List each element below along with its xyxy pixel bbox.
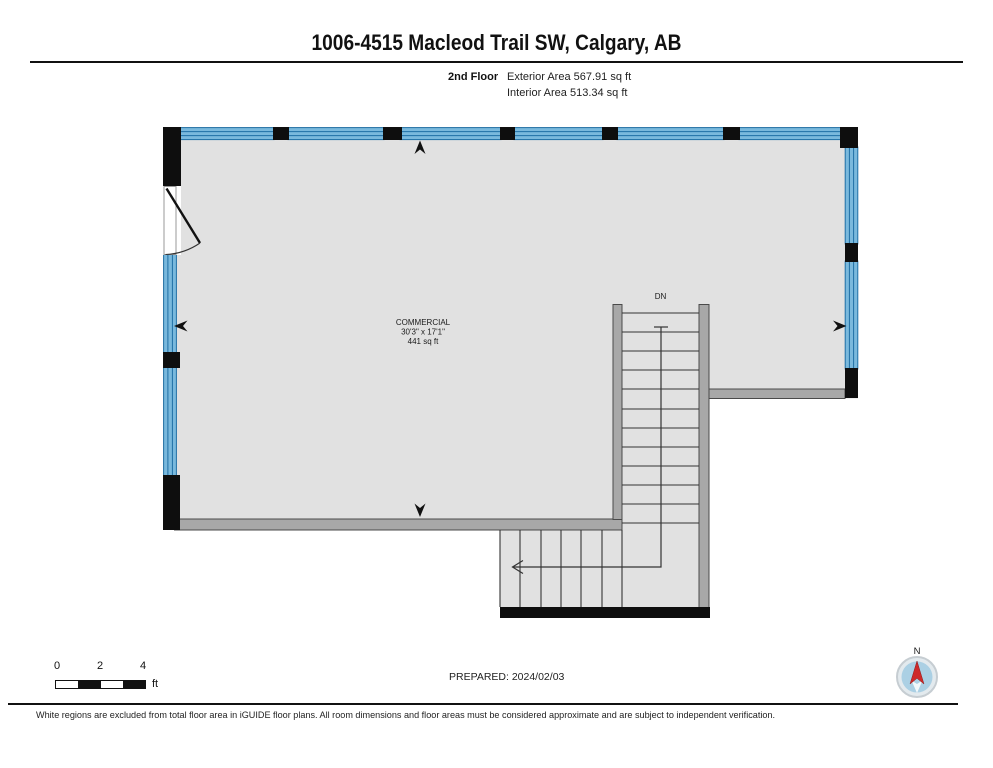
scale-bar-segments	[55, 680, 146, 689]
scale-segment	[78, 681, 100, 688]
window-right-1	[845, 147, 858, 244]
door-jamb	[164, 187, 176, 255]
footer-divider	[8, 703, 958, 705]
scale-label-0: 0	[54, 660, 60, 672]
room-bottom-wall	[175, 519, 623, 530]
stair-down-label: DN	[655, 292, 667, 301]
scale-segment	[56, 681, 78, 688]
compass: N	[897, 646, 937, 697]
compass-north-label: N	[914, 646, 921, 657]
window-left-2	[164, 367, 177, 476]
wall-top-left-corner	[163, 127, 181, 187]
wall-top-post-1	[273, 127, 289, 140]
window-top-2	[288, 128, 384, 140]
wall-top-right-corner	[840, 127, 858, 148]
floorplan-drawing: COMMERCIAL 30'3" x 17'1" 441 sq ft DN N	[0, 0, 993, 768]
wall-left-post	[163, 352, 180, 368]
stair-right-wall	[699, 305, 709, 608]
stair-left-wall	[613, 305, 622, 520]
room-dimensions: 30'3" x 17'1"	[401, 328, 445, 337]
scale-segment	[123, 681, 145, 688]
window-left-1	[164, 254, 177, 353]
wall-top-post-2	[383, 127, 402, 140]
wall-left-bottom	[163, 475, 180, 530]
scale-segment	[101, 681, 123, 688]
wall-top-post-3	[500, 127, 515, 140]
scale-label-4: 4	[140, 660, 146, 672]
window-top-3	[400, 128, 501, 140]
window-top-6	[739, 128, 841, 140]
wall-top-post-5	[723, 127, 740, 140]
window-top-5	[617, 128, 724, 140]
window-top-1	[180, 128, 274, 140]
stair-connector-wall	[709, 389, 845, 399]
window-top-4	[514, 128, 603, 140]
wall-right-bottom	[845, 368, 858, 398]
scale-bar: 0 2 4 ft	[55, 660, 185, 694]
room-name: COMMERCIAL	[396, 318, 451, 327]
floorplan-page: 1006-4515 Macleod Trail SW, Calgary, AB …	[0, 0, 993, 768]
scale-label-2: 2	[97, 660, 103, 672]
window-right-2	[845, 261, 858, 369]
wall-right-post	[845, 243, 858, 262]
wall-top-post-4	[602, 127, 618, 140]
floor-area	[163, 127, 858, 618]
scale-unit: ft	[152, 678, 158, 690]
disclaimer-text: White regions are excluded from total fl…	[36, 709, 775, 720]
stair-bottom-wall	[500, 607, 710, 618]
room-area: 441 sq ft	[408, 337, 439, 346]
prepared-date: PREPARED: 2024/02/03	[449, 671, 564, 683]
